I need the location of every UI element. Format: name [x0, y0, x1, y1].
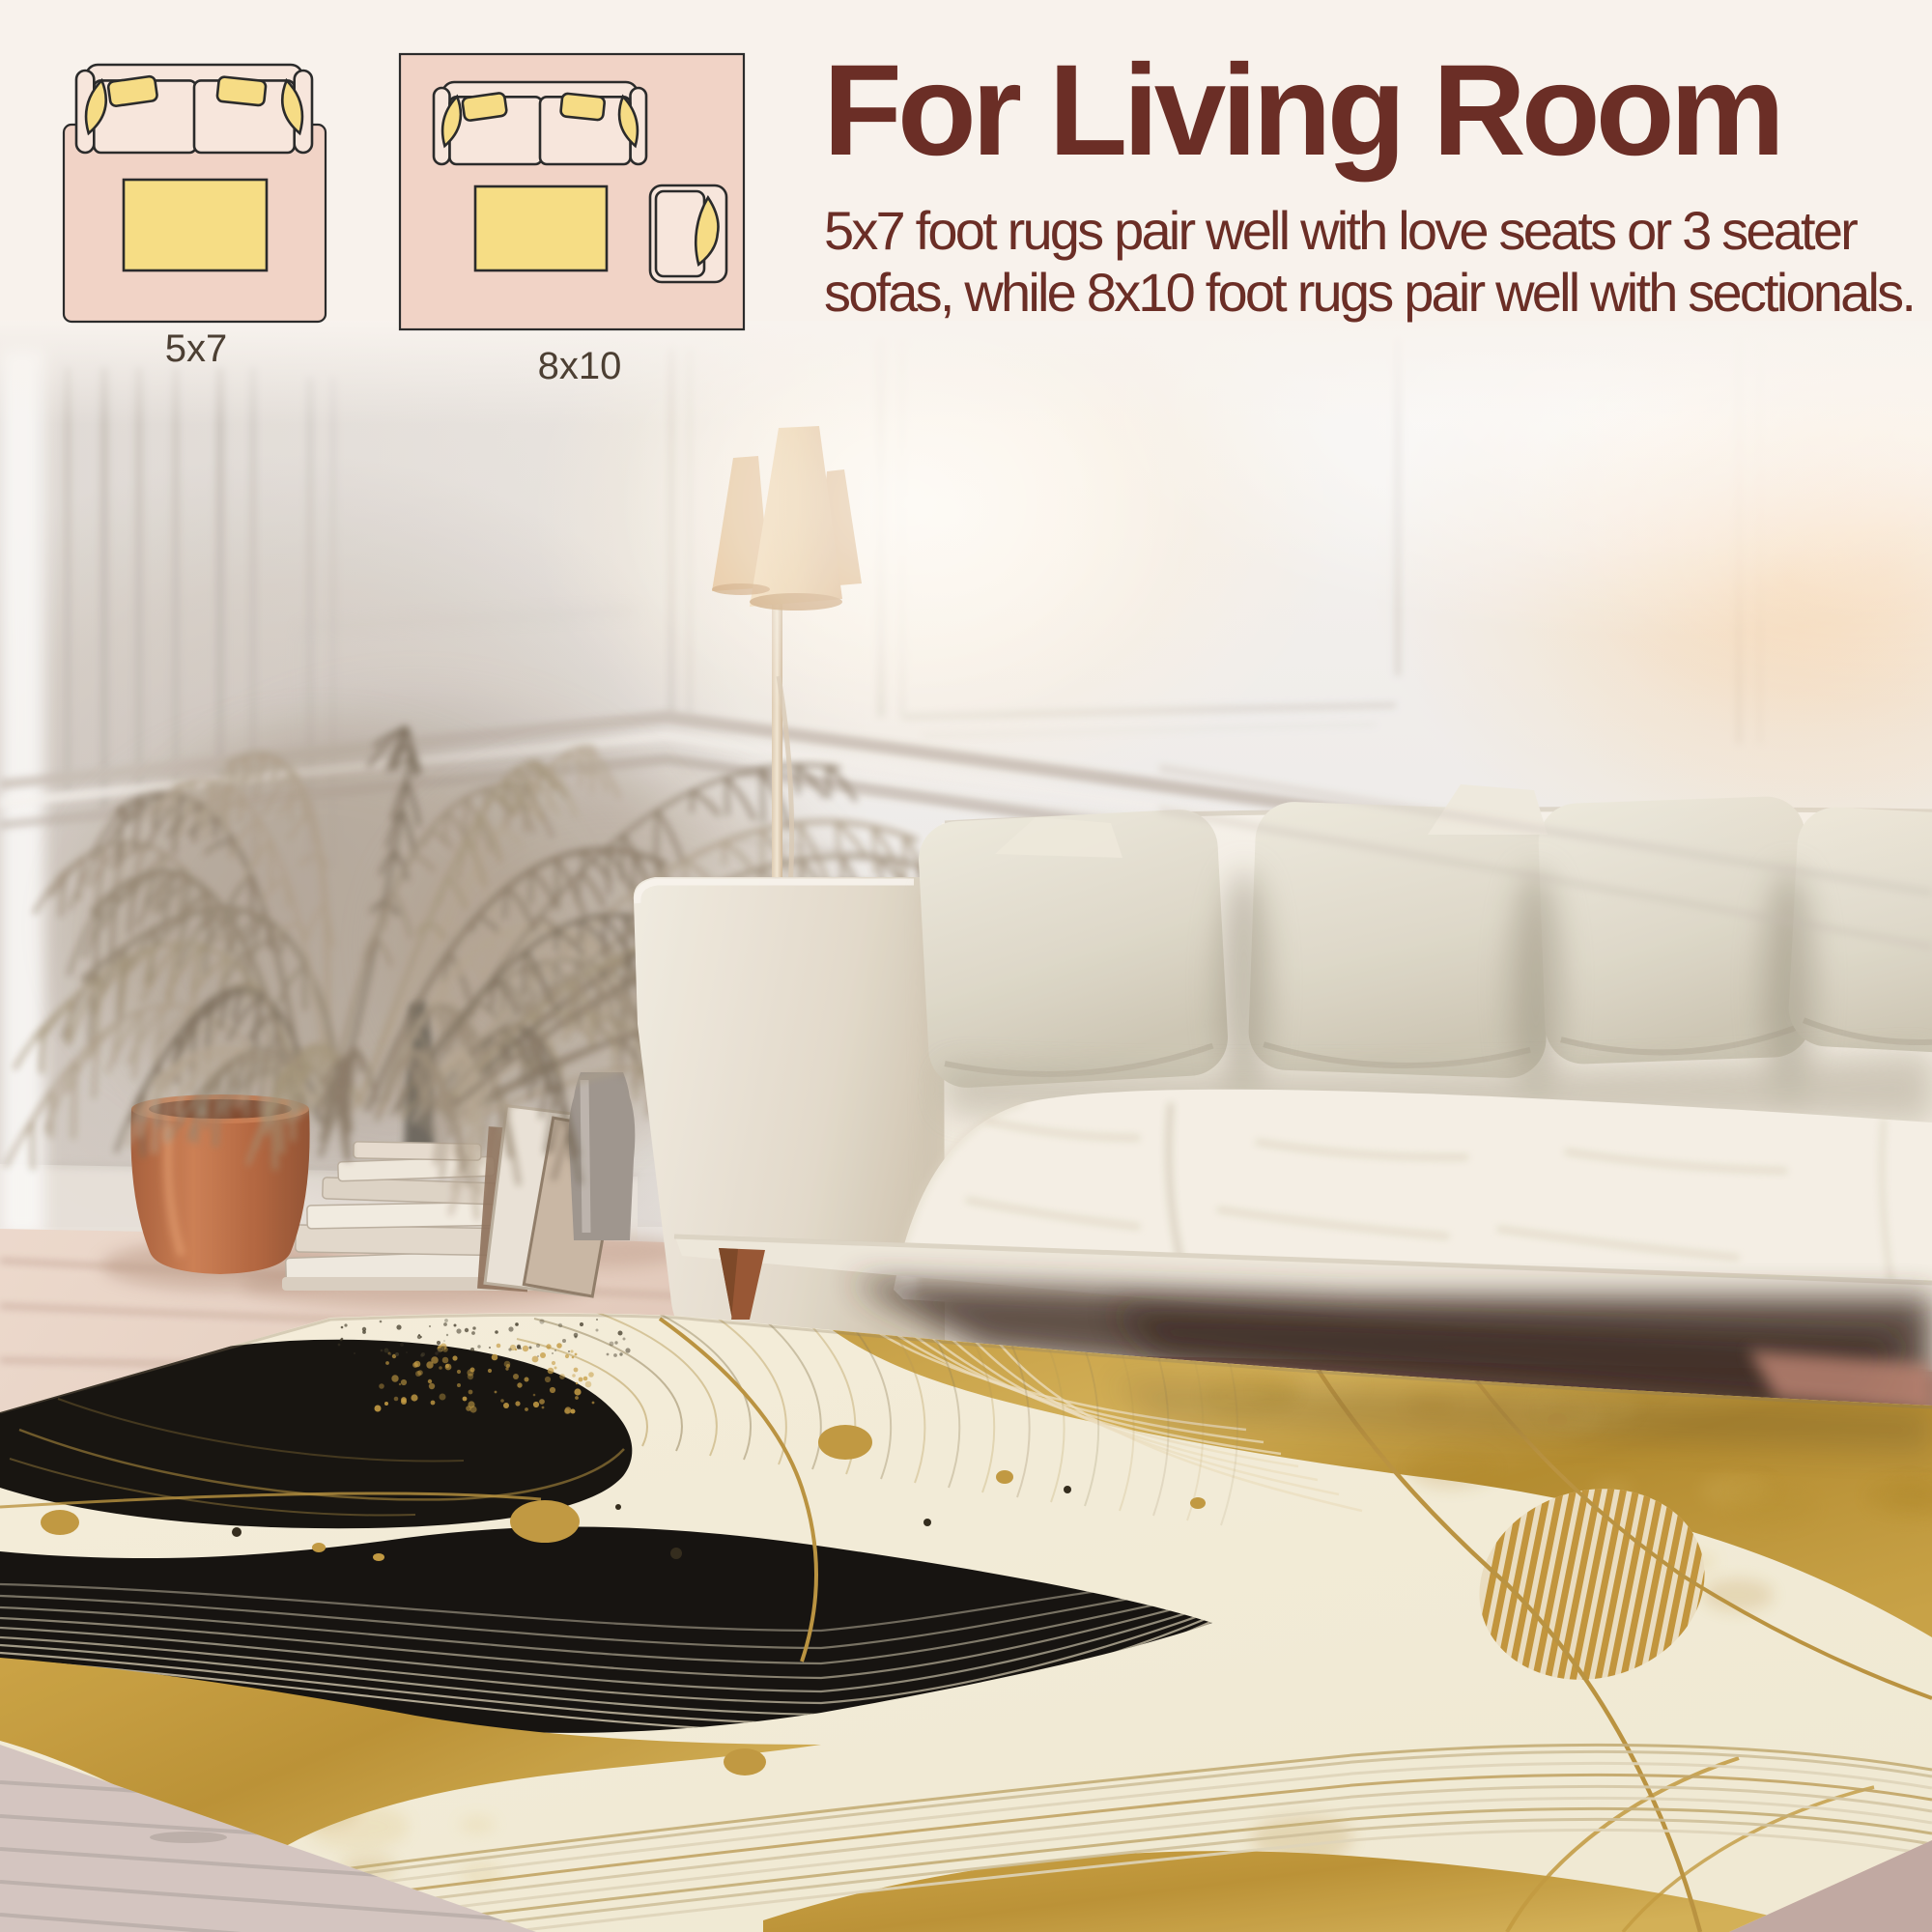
- svg-text:5x7: 5x7: [165, 327, 228, 370]
- svg-text:8x10: 8x10: [538, 345, 622, 387]
